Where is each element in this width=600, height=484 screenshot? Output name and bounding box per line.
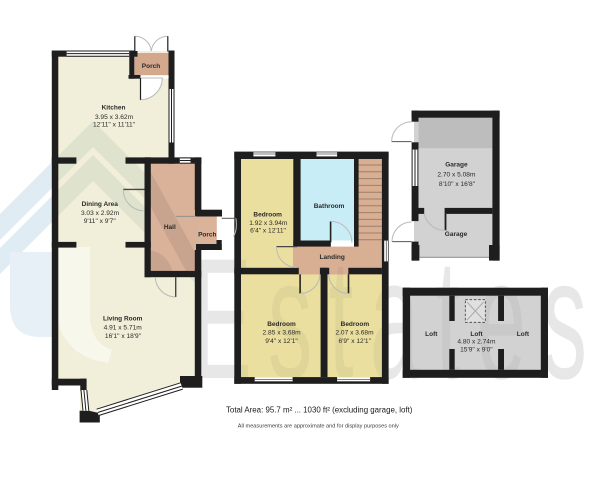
svg-text:Loft: Loft xyxy=(517,331,530,338)
svg-text:3.03 x 2.92m: 3.03 x 2.92m xyxy=(81,210,120,217)
svg-text:15'9" x 9'0": 15'9" x 9'0" xyxy=(460,346,493,353)
svg-text:8'10" x 16'8": 8'10" x 16'8" xyxy=(439,181,476,188)
svg-text:Porch: Porch xyxy=(198,232,216,239)
svg-text:4.80 x 2.74m: 4.80 x 2.74m xyxy=(457,339,496,346)
svg-text:9'11" x 9'7": 9'11" x 9'7" xyxy=(84,218,117,225)
svg-text:Bedroom: Bedroom xyxy=(253,211,282,218)
svg-text:Total Area: 95.7 m² ... 1030 f: Total Area: 95.7 m² ... 1030 ft² (exclud… xyxy=(226,406,413,415)
svg-text:Loft: Loft xyxy=(470,331,483,338)
svg-text:Bedroom: Bedroom xyxy=(341,321,370,328)
svg-text:Kitchen: Kitchen xyxy=(102,105,126,112)
svg-text:2.85 x 3.68m: 2.85 x 3.68m xyxy=(263,329,302,336)
svg-text:9'4" x 12'1": 9'4" x 12'1" xyxy=(265,338,298,345)
svg-text:Loft: Loft xyxy=(425,331,438,338)
svg-text:Bedroom: Bedroom xyxy=(267,321,296,328)
svg-text:Bathroom: Bathroom xyxy=(314,203,345,210)
svg-text:2.70 x 5.08m: 2.70 x 5.08m xyxy=(437,171,476,178)
svg-text:4.91 x 5.71m: 4.91 x 5.71m xyxy=(104,324,143,331)
svg-text:16'1" x 18'9": 16'1" x 18'9" xyxy=(105,333,142,340)
svg-text:Dining Area: Dining Area xyxy=(82,201,119,208)
svg-text:Living Room: Living Room xyxy=(103,316,143,323)
svg-text:All measurements are approxima: All measurements are approximate and for… xyxy=(238,424,399,430)
svg-text:3.95 x 3.62m: 3.95 x 3.62m xyxy=(95,114,134,121)
svg-text:6'4" x 12'11": 6'4" x 12'11" xyxy=(250,228,286,235)
svg-text:Garage: Garage xyxy=(445,231,468,238)
svg-text:Garage: Garage xyxy=(445,161,468,168)
svg-text:Porch: Porch xyxy=(142,63,160,70)
svg-text:1.92 x 3.94m: 1.92 x 3.94m xyxy=(249,220,288,227)
svg-text:Hall: Hall xyxy=(164,224,176,231)
svg-text:6'9" x 12'1": 6'9" x 12'1" xyxy=(338,338,371,345)
svg-text:Landing: Landing xyxy=(320,254,345,261)
svg-text:2.07 x 3.68m: 2.07 x 3.68m xyxy=(335,329,374,336)
svg-text:12'11" x 11'11": 12'11" x 11'11" xyxy=(93,122,136,129)
